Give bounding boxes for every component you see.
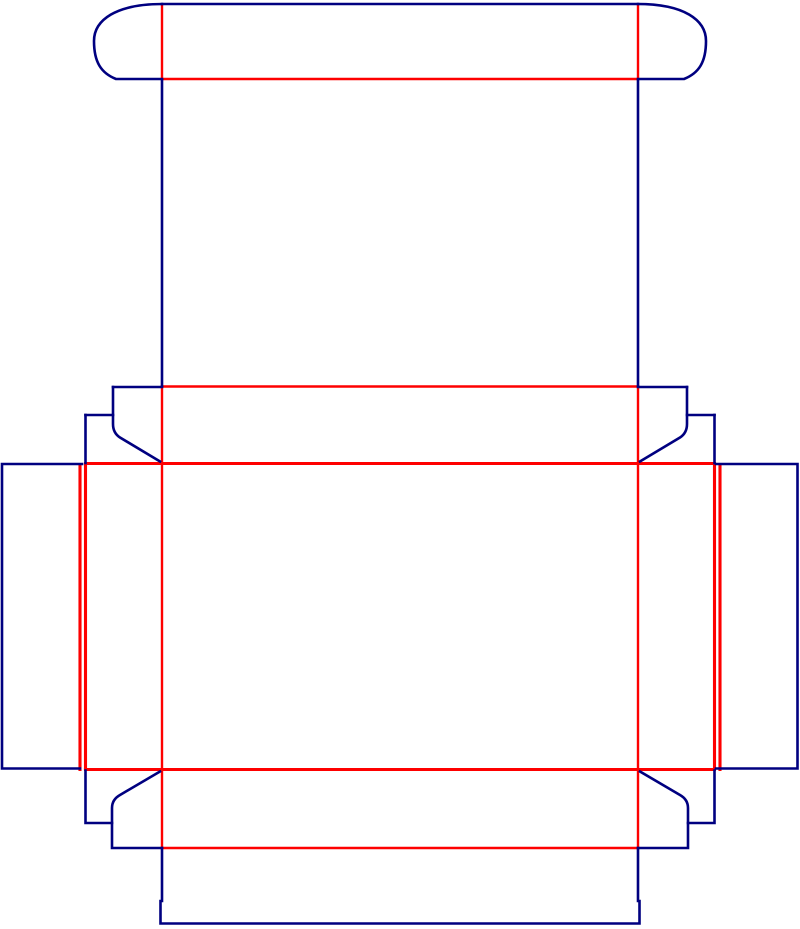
bottom-right-shoulder-chamfer [638, 772, 688, 849]
tuck-flap-right-cap [638, 4, 706, 79]
tuck-flap-left-cap [94, 4, 162, 79]
bottom-right-step [688, 771, 715, 824]
dieline-svg [0, 0, 800, 929]
top-right-shoulder-chamfer [640, 387, 687, 462]
bottom-left-shoulder-chamfer [112, 772, 162, 849]
right-flap-outline [716, 464, 798, 769]
top-left-shoulder-chamfer [113, 387, 160, 462]
left-flap-outline [2, 464, 82, 769]
bottom-left-step [86, 771, 113, 824]
bottom-tuck-outline [161, 848, 640, 924]
dieline-canvas [0, 0, 800, 929]
